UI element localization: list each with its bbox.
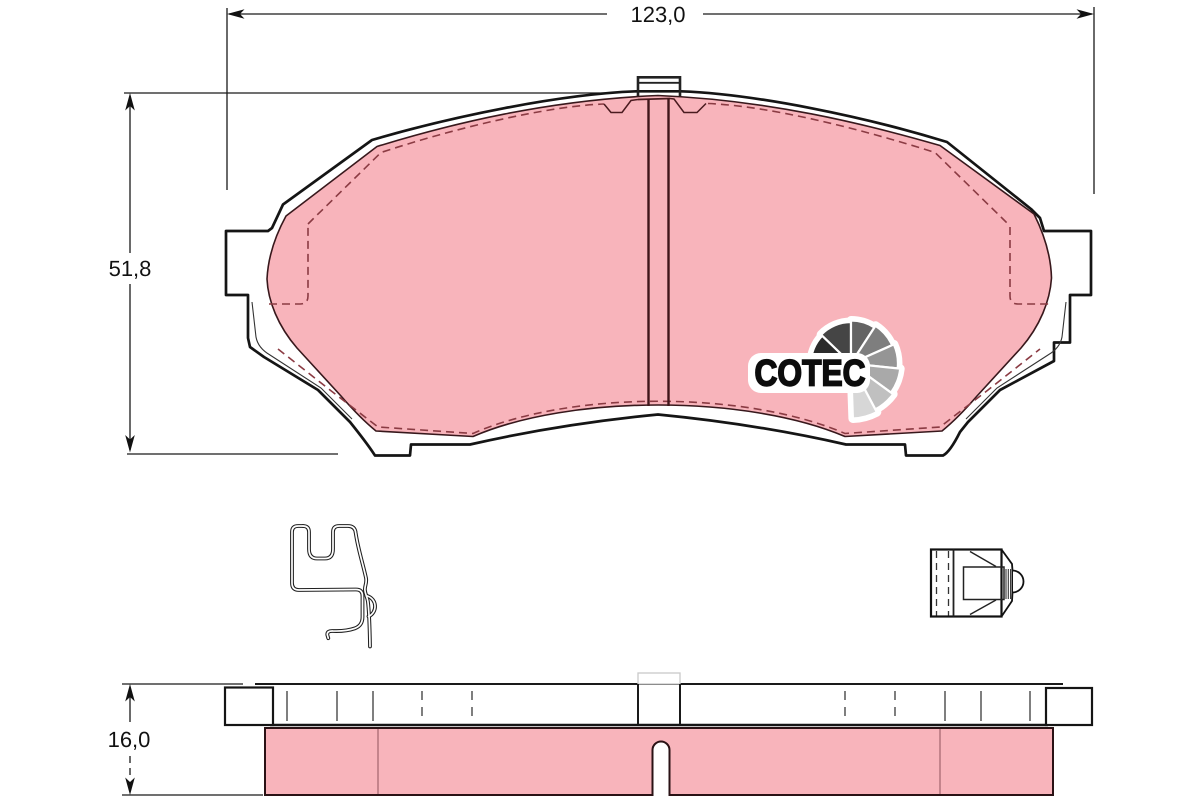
svg-text:123,0: 123,0 xyxy=(630,2,685,27)
svg-text:COTEC: COTEC xyxy=(755,353,866,394)
svg-text:51,8: 51,8 xyxy=(109,256,152,281)
svg-text:16,0: 16,0 xyxy=(108,727,151,752)
